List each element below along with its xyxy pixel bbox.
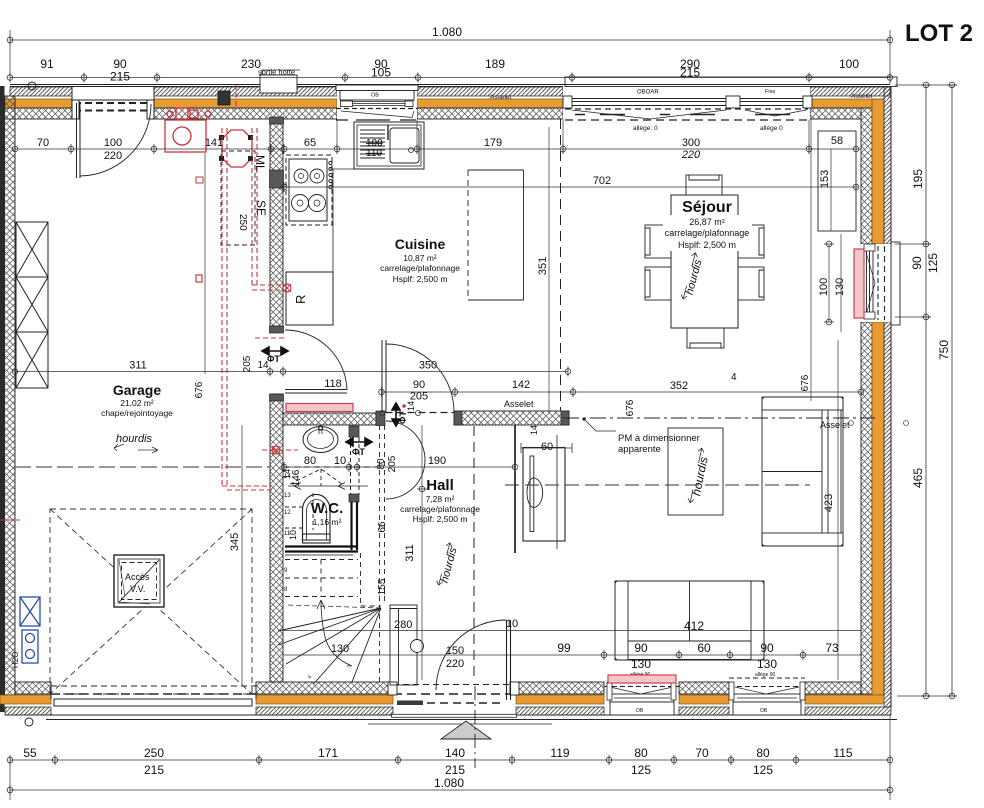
svg-text:70: 70 bbox=[37, 137, 49, 149]
svg-text:Hall: Hall bbox=[426, 477, 454, 494]
svg-text:1.080: 1.080 bbox=[434, 776, 464, 790]
svg-text:ML: ML bbox=[253, 155, 267, 172]
svg-text:carrelage/plafonnage: carrelage/plafonnage bbox=[380, 263, 460, 273]
svg-text:250: 250 bbox=[144, 746, 164, 760]
svg-text:99: 99 bbox=[557, 641, 571, 655]
svg-text:90: 90 bbox=[634, 641, 648, 655]
svg-text:750: 750 bbox=[937, 340, 951, 360]
svg-text:10: 10 bbox=[334, 455, 346, 467]
svg-text:171: 171 bbox=[318, 746, 338, 760]
svg-text:125: 125 bbox=[753, 763, 773, 777]
svg-text:12: 12 bbox=[284, 510, 291, 516]
svg-text:W.C.: W.C. bbox=[311, 500, 344, 517]
svg-text:allège: 0: allège: 0 bbox=[633, 125, 658, 132]
svg-text:205: 205 bbox=[387, 455, 398, 472]
svg-text:676: 676 bbox=[800, 374, 811, 391]
svg-text:189: 189 bbox=[485, 57, 505, 71]
svg-text:OB: OB bbox=[371, 93, 379, 99]
svg-text:73: 73 bbox=[825, 641, 839, 655]
svg-text:105: 105 bbox=[371, 66, 391, 80]
svg-text:130: 130 bbox=[757, 657, 777, 671]
svg-text:146: 146 bbox=[291, 469, 302, 486]
svg-text:130: 130 bbox=[331, 643, 349, 655]
svg-text:14: 14 bbox=[529, 425, 539, 435]
svg-text:58: 58 bbox=[831, 135, 843, 147]
svg-text:140: 140 bbox=[445, 746, 465, 760]
svg-text:220: 220 bbox=[104, 150, 122, 162]
svg-text:chape/rejointoyage: chape/rejointoyage bbox=[101, 408, 173, 418]
svg-text:130: 130 bbox=[834, 278, 846, 296]
svg-text:100: 100 bbox=[839, 57, 859, 71]
svg-text:Garage: Garage bbox=[113, 382, 161, 398]
svg-text:91: 91 bbox=[40, 57, 54, 71]
svg-text:apparente: apparente bbox=[618, 444, 661, 455]
svg-text:55: 55 bbox=[23, 746, 37, 760]
svg-text:141: 141 bbox=[205, 137, 223, 149]
svg-text:150: 150 bbox=[446, 645, 464, 657]
svg-text:250: 250 bbox=[237, 214, 248, 231]
svg-text:90: 90 bbox=[760, 641, 774, 655]
svg-text:215: 215 bbox=[445, 763, 465, 777]
svg-text:190: 190 bbox=[428, 455, 446, 467]
svg-text:Asselet: Asselet bbox=[490, 94, 512, 101]
svg-text:90: 90 bbox=[910, 256, 924, 270]
svg-text:hourdis: hourdis bbox=[116, 433, 153, 445]
svg-text:423: 423 bbox=[823, 494, 835, 512]
svg-text:26,87 m²: 26,87 m² bbox=[689, 217, 725, 227]
svg-text:Asselet: Asselet bbox=[504, 399, 534, 409]
svg-text:4: 4 bbox=[731, 372, 737, 383]
svg-text:100: 100 bbox=[104, 137, 122, 149]
svg-text:119: 119 bbox=[550, 746, 569, 760]
svg-text:allège 90: allège 90 bbox=[755, 672, 776, 678]
svg-text:carrelage/plafonnage: carrelage/plafonnage bbox=[400, 504, 480, 514]
svg-text:90: 90 bbox=[413, 379, 425, 391]
svg-text:ΦT: ΦT bbox=[352, 447, 365, 457]
svg-text:13: 13 bbox=[284, 493, 291, 499]
svg-text:220: 220 bbox=[446, 658, 464, 670]
svg-text:Hsplf: 2,500 m: Hsplf: 2,500 m bbox=[393, 274, 448, 284]
svg-text:465: 465 bbox=[911, 468, 925, 488]
svg-text:205: 205 bbox=[242, 355, 253, 372]
svg-text:205: 205 bbox=[410, 391, 428, 403]
svg-text:70: 70 bbox=[695, 746, 709, 760]
svg-text:Fixe: Fixe bbox=[765, 89, 775, 95]
svg-text:115: 115 bbox=[833, 746, 852, 760]
svg-text:OBOAR: OBOAR bbox=[637, 90, 659, 96]
svg-text:195: 195 bbox=[911, 169, 925, 189]
svg-text:sortie hotte: sortie hotte bbox=[258, 68, 295, 77]
svg-text:155: 155 bbox=[377, 578, 388, 595]
svg-text:Accès: Accès bbox=[125, 572, 150, 582]
svg-text:351: 351 bbox=[537, 257, 549, 275]
svg-text:1.080: 1.080 bbox=[432, 25, 462, 39]
svg-text:153: 153 bbox=[819, 170, 831, 188]
svg-text:ΦT: ΦT bbox=[398, 411, 408, 424]
svg-text:OB: OB bbox=[760, 708, 768, 714]
svg-text:179: 179 bbox=[484, 137, 502, 149]
svg-text:Hsplf: 2,500 m: Hsplf: 2,500 m bbox=[413, 514, 468, 524]
svg-text:676: 676 bbox=[625, 399, 636, 416]
svg-text:allège 0: allège 0 bbox=[760, 125, 783, 132]
svg-text:Séjour: Séjour bbox=[682, 199, 732, 216]
svg-text:300: 300 bbox=[682, 137, 700, 149]
svg-text:352: 352 bbox=[670, 380, 688, 392]
svg-text:130: 130 bbox=[631, 657, 651, 671]
svg-text:ΦT: ΦT bbox=[267, 354, 280, 364]
svg-text:350: 350 bbox=[419, 360, 437, 372]
svg-text:345: 345 bbox=[229, 533, 241, 551]
svg-text:125: 125 bbox=[926, 253, 940, 273]
svg-text:Cuisine: Cuisine bbox=[395, 236, 446, 252]
svg-text:65: 65 bbox=[304, 137, 316, 149]
svg-text:PM à dimensionner: PM à dimensionner bbox=[618, 433, 700, 444]
svg-text:142: 142 bbox=[512, 379, 530, 391]
svg-text:Asselet: Asselet bbox=[851, 93, 873, 100]
svg-text:SE: SE bbox=[254, 200, 268, 216]
svg-text:80: 80 bbox=[756, 746, 770, 760]
svg-text:702: 702 bbox=[593, 175, 611, 187]
svg-text:60: 60 bbox=[697, 641, 711, 655]
svg-text:Asselet: Asselet bbox=[820, 420, 850, 430]
svg-text:412: 412 bbox=[684, 619, 704, 633]
svg-text:66: 66 bbox=[377, 521, 388, 533]
svg-text:60: 60 bbox=[541, 441, 553, 453]
svg-text:280: 280 bbox=[394, 619, 412, 631]
svg-text:676: 676 bbox=[194, 381, 205, 398]
svg-text:118: 118 bbox=[324, 378, 342, 390]
svg-text:80: 80 bbox=[376, 458, 387, 470]
svg-text:215: 215 bbox=[144, 763, 164, 777]
svg-text:V.V.: V.V. bbox=[130, 584, 145, 594]
svg-text:1,16 m²: 1,16 m² bbox=[313, 517, 342, 527]
svg-text:110: 110 bbox=[366, 148, 382, 159]
svg-text:10: 10 bbox=[288, 530, 298, 540]
svg-text:125: 125 bbox=[631, 763, 651, 777]
svg-text:220: 220 bbox=[681, 149, 701, 161]
svg-text:Hsplf: 2,500 m: Hsplf: 2,500 m bbox=[678, 240, 736, 250]
svg-text:21,02 m²: 21,02 m² bbox=[120, 398, 154, 408]
svg-text:311: 311 bbox=[404, 544, 416, 562]
svg-text:R: R bbox=[293, 295, 308, 304]
svg-text:80: 80 bbox=[634, 746, 648, 760]
svg-text:carrelage/plafonnage: carrelage/plafonnage bbox=[665, 228, 750, 238]
svg-text:311: 311 bbox=[129, 360, 147, 372]
svg-text:14: 14 bbox=[406, 401, 416, 411]
svg-text:80: 80 bbox=[304, 455, 316, 467]
svg-text:7,28 m²: 7,28 m² bbox=[426, 494, 455, 504]
svg-text:14: 14 bbox=[282, 469, 292, 479]
svg-text:215: 215 bbox=[110, 70, 130, 84]
svg-text:10,87 m²: 10,87 m² bbox=[403, 253, 437, 263]
svg-text:215: 215 bbox=[680, 66, 700, 80]
svg-text:OB: OB bbox=[636, 708, 644, 714]
svg-text:LOT 2: LOT 2 bbox=[905, 20, 973, 47]
svg-text:100: 100 bbox=[818, 278, 830, 296]
svg-text:H2O: H2O bbox=[11, 652, 20, 668]
svg-text:10: 10 bbox=[506, 618, 518, 630]
